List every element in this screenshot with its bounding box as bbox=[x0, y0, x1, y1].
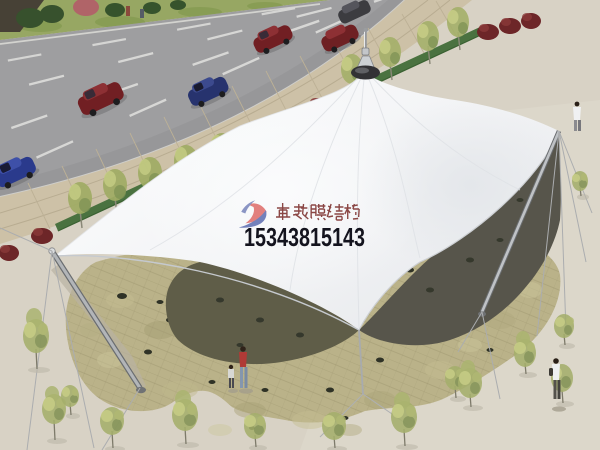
svg-text:15343815143: 15343815143 bbox=[244, 224, 365, 252]
